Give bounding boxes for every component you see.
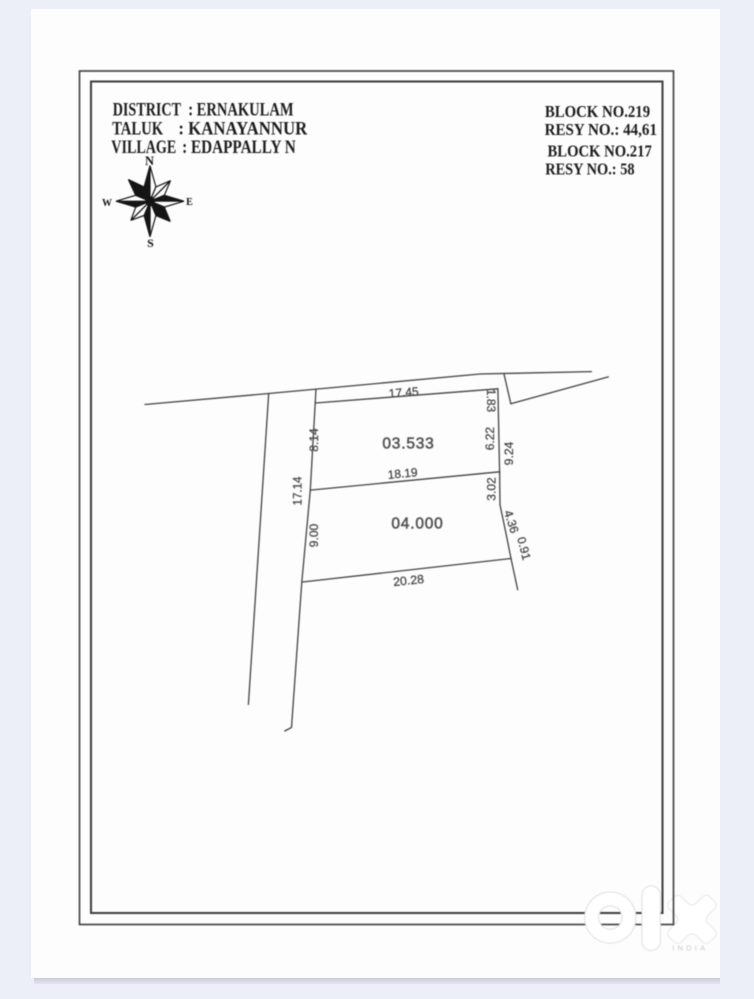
svg-text:03.533: 03.533 — [382, 436, 434, 453]
svg-text:17.45: 17.45 — [388, 384, 419, 400]
svg-text:0.91: 0.91 — [514, 535, 534, 561]
svg-text:9.00: 9.00 — [307, 523, 321, 547]
svg-text:9.24: 9.24 — [502, 441, 516, 465]
svg-text:E: E — [186, 197, 193, 208]
svg-text:BLOCK NO.217: BLOCK NO.217 — [548, 142, 653, 161]
svg-text:: KANAYANNUR: : KANAYANNUR — [178, 119, 307, 139]
svg-text:8.14: 8.14 — [307, 428, 321, 452]
svg-text:W: W — [102, 198, 112, 209]
svg-text:3.02: 3.02 — [485, 477, 499, 501]
svg-text:S: S — [147, 236, 154, 250]
svg-text:RESY NO.: 58: RESY NO.: 58 — [545, 160, 634, 179]
svg-text:: EDAPPALLY N: : EDAPPALLY N — [182, 138, 296, 158]
svg-text:18.19: 18.19 — [387, 465, 419, 482]
svg-text:RESY NO.: 44,61: RESY NO.: 44,61 — [545, 120, 657, 139]
svg-text:INDIA: INDIA — [672, 944, 708, 953]
svg-text:N: N — [145, 154, 154, 168]
svg-text:: ERNAKULAM: : ERNAKULAM — [188, 101, 293, 121]
svg-text:BLOCK NO.219: BLOCK NO.219 — [545, 102, 650, 121]
svg-text:4.36: 4.36 — [501, 508, 522, 535]
svg-text:1.83: 1.83 — [484, 389, 498, 413]
svg-text:04.000: 04.000 — [391, 516, 443, 533]
svg-text:6.22: 6.22 — [483, 427, 497, 451]
svg-text:DISTRICT: DISTRICT — [113, 101, 182, 121]
svg-text:TALUK: TALUK — [112, 119, 163, 139]
svg-text:VILLAGE: VILLAGE — [111, 138, 176, 158]
svg-text:17.14: 17.14 — [291, 476, 305, 505]
svg-text:20.28: 20.28 — [392, 572, 425, 589]
